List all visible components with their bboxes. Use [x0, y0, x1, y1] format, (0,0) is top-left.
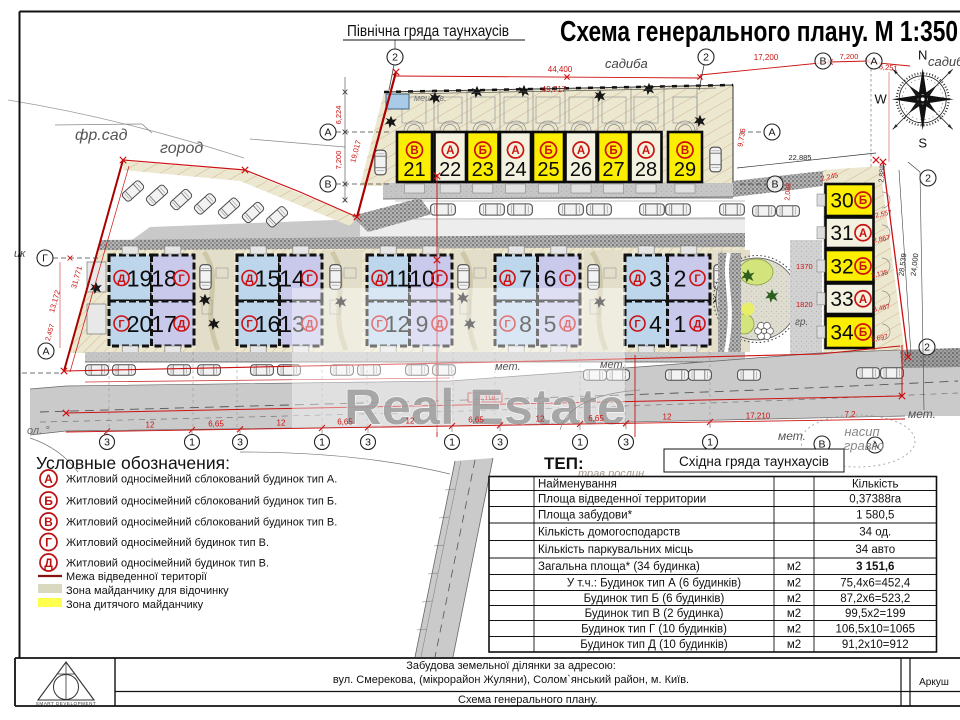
svg-text:У т.ч.: Будинок тип А (6 будин: У т.ч.: Будинок тип А (6 будинків): [567, 577, 741, 589]
svg-text:садиба: садиба: [605, 56, 648, 71]
svg-text:А: А: [446, 145, 454, 157]
svg-text:12: 12: [277, 419, 286, 428]
svg-text:22,885: 22,885: [789, 153, 812, 162]
svg-text:А: А: [511, 145, 519, 157]
svg-text:N: N: [918, 47, 927, 62]
svg-text:Будинок тип Б (6 будинків): Будинок тип Б (6 будинків): [584, 593, 725, 605]
svg-text:Забудова земельної ділянки за: Забудова земельної ділянки за адресою:: [406, 660, 616, 672]
svg-text:32: 32: [830, 255, 853, 278]
svg-text:6,65: 6,65: [337, 418, 353, 427]
svg-text:30: 30: [830, 189, 853, 212]
svg-text:14: 14: [279, 265, 305, 291]
svg-text:м2: м2: [787, 561, 801, 573]
svg-text:Г: Г: [45, 535, 52, 549]
svg-text:Г: Г: [694, 273, 701, 285]
svg-text:Г: Г: [42, 253, 48, 265]
svg-text:16: 16: [255, 311, 281, 337]
svg-text:Житловий односімейний сблокова: Житловий односімейний сблокований будино…: [66, 496, 337, 508]
svg-text:1: 1: [319, 437, 325, 449]
svg-text:В: В: [771, 179, 778, 191]
svg-text:Житловий односімейний сблокова: Житловий односімейний сблокований будино…: [66, 517, 337, 529]
svg-text:1 580,5: 1 580,5: [856, 510, 894, 522]
svg-text:1: 1: [674, 311, 687, 337]
svg-text:Зона майданчику для відочинку: Зона майданчику для відочинку: [66, 585, 229, 597]
svg-text:м2: м2: [787, 608, 801, 620]
svg-text:3: 3: [497, 437, 503, 449]
svg-text:12: 12: [146, 421, 155, 430]
svg-text:А: А: [577, 145, 585, 157]
svg-text:29: 29: [674, 159, 696, 181]
svg-text:Б: Б: [859, 261, 867, 273]
svg-text:3: 3: [649, 265, 662, 291]
svg-text:Будинок тип Г (10 будинків): Будинок тип Г (10 будинків): [581, 623, 727, 635]
svg-text:гравію: гравію: [844, 438, 885, 453]
svg-text:В: В: [681, 145, 689, 157]
svg-text:26: 26: [570, 159, 592, 181]
svg-text:Кількість паркувальних місць: Кількість паркувальних місць: [538, 544, 693, 556]
svg-text:3 151,6: 3 151,6: [856, 561, 894, 573]
svg-text:24: 24: [504, 159, 526, 181]
svg-text:гр.: гр.: [795, 317, 808, 328]
svg-text:7,200: 7,200: [840, 52, 859, 61]
svg-text:Площа відведенної территории: Площа відведенної территории: [538, 493, 706, 505]
svg-text:W: W: [875, 91, 888, 106]
svg-text:мет.: мет.: [600, 359, 626, 371]
svg-text:6,65: 6,65: [468, 416, 484, 425]
svg-text:22: 22: [439, 159, 461, 181]
svg-text:2: 2: [703, 52, 709, 64]
svg-text:Зона дитячого майданчику: Зона дитячого майданчику: [66, 599, 204, 611]
svg-text:2: 2: [674, 265, 687, 291]
svg-text:Д: Д: [118, 273, 126, 285]
svg-text:садиба: садиба: [928, 54, 960, 69]
svg-text:Житловий односімейний сблокова: Житловий односімейний сблокований будино…: [66, 474, 337, 486]
svg-text:2: 2: [924, 342, 930, 354]
svg-text:1: 1: [189, 437, 195, 449]
svg-text:49,717: 49,717: [542, 85, 567, 94]
svg-text:Б: Б: [609, 145, 617, 157]
svg-text:44,400: 44,400: [548, 65, 573, 74]
svg-text:Площа забудови*: Площа забудови*: [538, 510, 633, 522]
svg-text:Житловий односімейний будинок: Житловий односімейний будинок тип В.: [66, 537, 269, 549]
svg-text:3: 3: [237, 437, 243, 449]
svg-text:В: В: [324, 179, 331, 191]
svg-text:87,2х6=523,2: 87,2х6=523,2: [840, 593, 910, 605]
svg-text:Будинок тип Д (10 будинків): Будинок тип Д (10 будинків): [580, 639, 728, 651]
svg-text:3: 3: [623, 437, 629, 449]
svg-text:А: А: [859, 228, 867, 240]
svg-text:А: А: [859, 294, 867, 306]
svg-text:Північна гряда таунхаусів: Північна гряда таунхаусів: [347, 23, 509, 40]
svg-text:А: А: [44, 472, 53, 486]
svg-text:Межа відведенної території: Межа відведенної території: [66, 571, 207, 583]
svg-text:Б: Б: [859, 327, 867, 339]
svg-text:А: А: [324, 127, 331, 139]
svg-text:В: В: [819, 56, 826, 68]
svg-text:Кількість домогосподарств: Кількість домогосподарств: [538, 527, 680, 539]
svg-text:Г: Г: [306, 273, 313, 285]
svg-text:фр.сад: фр.сад: [75, 127, 128, 144]
svg-text:Схема генерального плану. М 1:: Схема генерального плану. М 1:350: [560, 16, 958, 48]
svg-text:Д: Д: [504, 273, 512, 285]
svg-text:11: 11: [386, 265, 410, 291]
svg-text:Г: Г: [246, 319, 253, 331]
svg-text:город: город: [160, 140, 203, 157]
svg-text:20: 20: [127, 311, 153, 337]
svg-text:27: 27: [602, 159, 624, 181]
svg-text:Будинок тип В (2 будинка): Будинок тип В (2 будинка): [585, 608, 724, 620]
svg-text:0,37388га: 0,37388га: [849, 493, 902, 505]
svg-text:17: 17: [151, 311, 177, 337]
svg-text:Б: Б: [479, 145, 487, 157]
svg-text:м2: м2: [787, 623, 801, 635]
svg-text:15: 15: [255, 265, 281, 291]
svg-text:25: 25: [537, 159, 559, 181]
svg-text:м2: м2: [787, 593, 801, 605]
svg-text:18: 18: [151, 265, 177, 291]
svg-text:Б: Б: [859, 195, 867, 207]
svg-text:мет.: мет.: [908, 407, 936, 421]
svg-text:6: 6: [544, 265, 557, 291]
svg-text:106,5х10=1065: 106,5х10=1065: [835, 623, 915, 635]
svg-text:Д: Д: [376, 273, 384, 285]
svg-text:А: А: [642, 145, 650, 157]
svg-text:м2: м2: [787, 577, 801, 589]
svg-text:34: 34: [830, 321, 854, 344]
svg-text:Условные обозначения:: Условные обозначения:: [36, 453, 230, 473]
svg-text:1: 1: [577, 437, 583, 449]
svg-text:Б: Б: [44, 494, 53, 508]
svg-text:34 од.: 34 од.: [859, 527, 891, 539]
svg-text:17,210: 17,210: [746, 411, 771, 420]
svg-text:75,4х6=452,4: 75,4х6=452,4: [840, 577, 911, 589]
svg-text:Г: Г: [634, 319, 641, 331]
svg-text:7: 7: [519, 265, 532, 291]
svg-text:А: А: [768, 127, 775, 139]
svg-text:Житловий односімейний будинок: Житловий односімейний будинок тип В.: [66, 558, 269, 570]
svg-text:Г: Г: [118, 319, 125, 331]
svg-text:7,2: 7,2: [844, 410, 856, 419]
svg-text:28: 28: [635, 159, 657, 181]
svg-text:1: 1: [707, 437, 713, 449]
svg-text:Загальна площа* (34 будинка): Загальна площа* (34 будинка): [538, 561, 700, 573]
svg-text:1: 1: [449, 437, 455, 449]
svg-text:21: 21: [403, 159, 425, 181]
svg-text:Схема генерального плану.: Схема генерального плану.: [458, 694, 598, 706]
svg-text:насип: насип: [844, 424, 879, 439]
svg-text:4: 4: [649, 311, 662, 337]
svg-text:Найменування: Найменування: [538, 478, 617, 490]
svg-text:99,5х2=199: 99,5х2=199: [845, 608, 905, 620]
svg-text:34 авто: 34 авто: [855, 544, 895, 556]
svg-text:91,2х10=912: 91,2х10=912: [842, 639, 909, 651]
svg-text:12: 12: [663, 413, 672, 422]
svg-text:7,200: 7,200: [334, 151, 343, 170]
svg-text:Б: Б: [544, 145, 552, 157]
svg-text:Г: Г: [564, 273, 571, 285]
svg-text:33: 33: [830, 288, 853, 311]
svg-text:мет.: мет.: [778, 429, 806, 443]
svg-text:А: А: [870, 56, 877, 68]
svg-text:19: 19: [127, 265, 153, 291]
svg-text:10: 10: [409, 265, 435, 291]
svg-text:3: 3: [104, 437, 110, 449]
svg-text:Кількість: Кількість: [852, 478, 899, 490]
svg-text:2: 2: [925, 173, 931, 185]
svg-text:31: 31: [830, 222, 853, 245]
svg-text:Д: Д: [246, 273, 254, 285]
svg-text:SMART DEVELOPMENT: SMART DEVELOPMENT: [36, 701, 96, 706]
svg-text:А: А: [42, 346, 49, 358]
svg-text:2: 2: [392, 52, 398, 64]
svg-text:Г: Г: [178, 273, 185, 285]
svg-text:23: 23: [472, 159, 494, 181]
svg-text:Східна гряда таунхаусів: Східна гряда таунхаусів: [679, 454, 829, 469]
svg-text:1370: 1370: [796, 262, 813, 271]
svg-text:12: 12: [536, 415, 545, 424]
svg-text:мет.: мет.: [495, 361, 521, 373]
svg-text:В: В: [44, 515, 53, 529]
svg-text:Аркуш: Аркуш: [919, 677, 949, 688]
svg-text:В: В: [410, 145, 418, 157]
svg-text:Д: Д: [634, 273, 642, 285]
svg-text:вул. Смерекова, (мікрорайон Жу: вул. Смерекова, (мікрорайон Жуляни), Сол…: [333, 674, 689, 686]
svg-text:ол. °: ол. °: [27, 425, 50, 437]
svg-text:Д: Д: [694, 319, 702, 331]
svg-text:м2: м2: [787, 639, 801, 651]
svg-text:3: 3: [365, 437, 371, 449]
svg-text:17,200: 17,200: [754, 53, 779, 62]
svg-text:6,65: 6,65: [588, 414, 604, 423]
svg-text:Д: Д: [178, 319, 186, 331]
svg-text:6,65: 6,65: [208, 420, 224, 429]
svg-text:6,224: 6,224: [334, 106, 343, 125]
svg-text:S: S: [918, 135, 927, 150]
svg-text:Д: Д: [44, 556, 53, 570]
svg-text:1820: 1820: [796, 300, 813, 309]
svg-text:12: 12: [406, 417, 415, 426]
